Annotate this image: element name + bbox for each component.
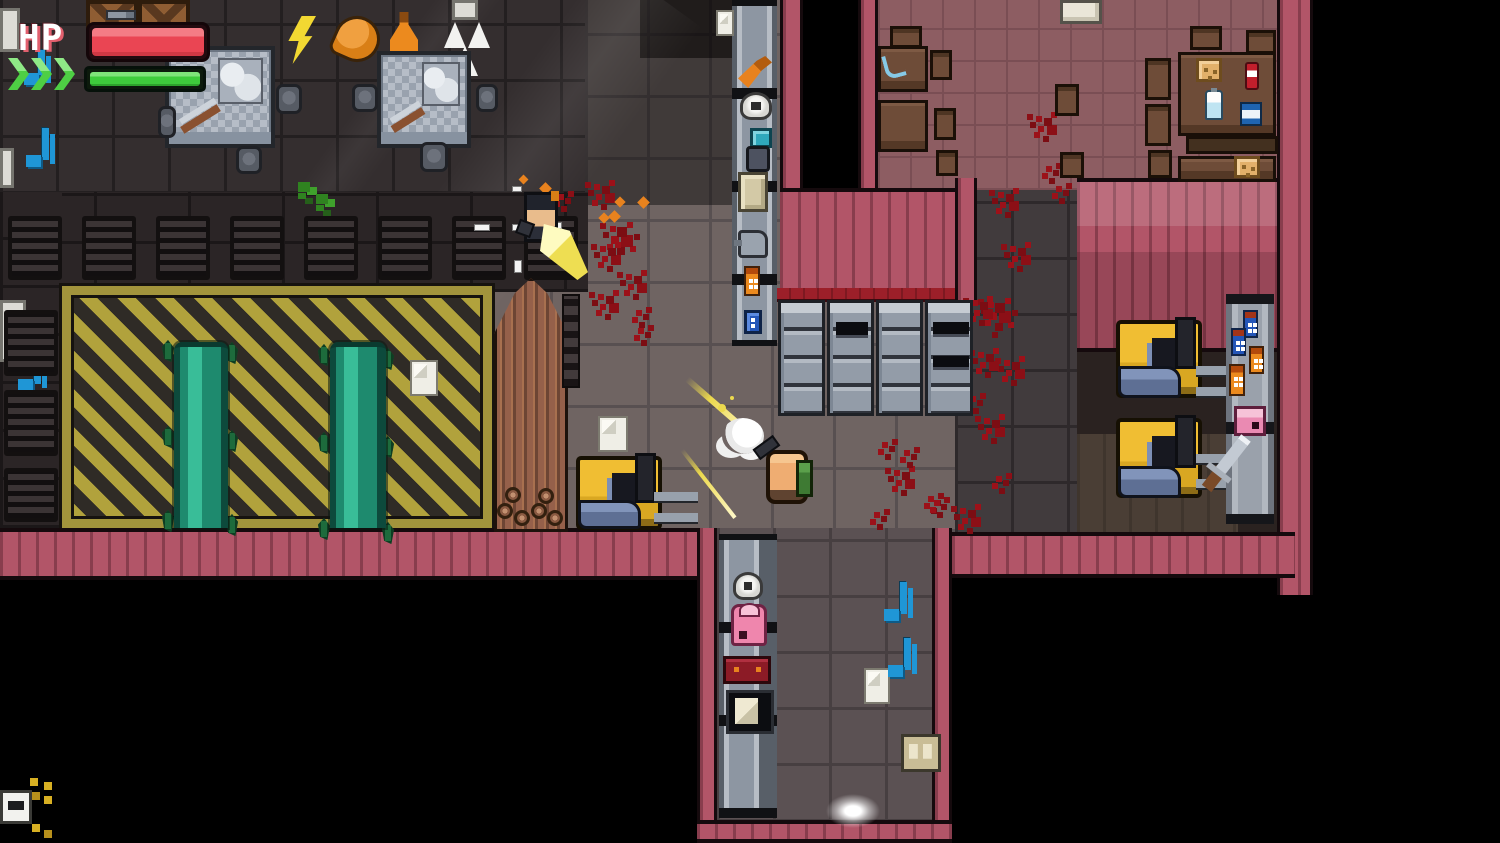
forklift [576, 456, 662, 530]
glow [826, 794, 880, 828]
chair [1145, 104, 1171, 146]
chair [930, 50, 952, 80]
blood-m [998, 192, 1004, 198]
vent [4, 468, 58, 522]
vent [156, 216, 210, 280]
green-slime [316, 194, 328, 204]
paper [410, 360, 438, 396]
blood-m [600, 246, 606, 252]
vent [82, 216, 136, 280]
sign [0, 790, 32, 824]
pinkbox [1234, 406, 1266, 436]
locker-col [827, 300, 874, 416]
citem-bluebox [744, 310, 762, 334]
blood-m [984, 418, 990, 424]
vent [4, 390, 58, 456]
chair [936, 150, 958, 176]
hazard-zone [62, 286, 492, 528]
right-outer-wall [1277, 0, 1313, 595]
vent [8, 216, 62, 280]
blood-s [934, 500, 940, 506]
hp-label: HP [18, 18, 63, 59]
music-note [888, 638, 914, 682]
casing [514, 260, 522, 273]
forklift [1116, 418, 1202, 498]
locker-col [876, 300, 923, 416]
blood-m [960, 508, 966, 514]
paper [716, 10, 734, 36]
corridor-left-wall [697, 528, 717, 843]
blood-s [1056, 186, 1062, 192]
vent [378, 216, 432, 280]
vent [304, 216, 358, 280]
boost-bar-fill [90, 72, 200, 86]
blood-m [978, 352, 984, 358]
blood-m [894, 470, 900, 476]
table-small [878, 100, 928, 152]
citem-helmet [740, 92, 772, 120]
pink-wall-panel [780, 188, 957, 292]
vent [230, 216, 284, 280]
music-note [26, 128, 52, 172]
chair [1055, 84, 1079, 116]
beige-box [738, 172, 768, 212]
chair [890, 26, 922, 48]
bottle-blue [1231, 328, 1246, 356]
chair [1145, 58, 1171, 100]
blood-s [904, 450, 910, 456]
stool [420, 142, 448, 172]
blood-s [882, 442, 888, 448]
whitebox [1060, 0, 1102, 24]
blood-m [1010, 246, 1016, 252]
stool [352, 84, 378, 112]
logend [531, 503, 547, 519]
chevron-icon [54, 58, 75, 90]
chair [934, 108, 956, 140]
blood-m [626, 274, 632, 280]
blood-m [598, 294, 604, 300]
logend [538, 488, 554, 504]
bread [1196, 58, 1222, 82]
redbox [723, 656, 771, 684]
hud: HP [0, 0, 280, 110]
table-small [1178, 156, 1276, 182]
conveyor-teal [330, 342, 386, 528]
whitepart [452, 0, 478, 20]
chevron-icon [8, 58, 29, 90]
locker-open [836, 322, 868, 338]
stool [476, 84, 498, 112]
chair [1060, 152, 1084, 178]
paperbox [726, 690, 774, 734]
game-viewport[interactable]: HP [0, 0, 1500, 843]
boost-chevrons [8, 58, 75, 90]
locker-col [778, 300, 825, 416]
corridor-bottom-wall [697, 820, 952, 843]
citem-seat [746, 146, 770, 172]
green-slime [298, 182, 310, 192]
pink-wall-column [780, 0, 803, 192]
conveyor-teal [174, 342, 228, 528]
whitepart [0, 148, 14, 188]
blood-m [1036, 116, 1042, 122]
logend [497, 503, 513, 519]
cafeteria-left-wall [858, 0, 878, 192]
logend [505, 487, 521, 503]
logend [547, 510, 563, 526]
citem-can [738, 230, 768, 258]
hp-bar [86, 22, 210, 62]
ketchup [1245, 62, 1259, 90]
casing [512, 186, 522, 192]
backpack [731, 604, 767, 646]
forklift [1116, 320, 1202, 398]
paper [598, 416, 628, 452]
chair [1190, 26, 1222, 50]
beigebox-double [901, 734, 941, 772]
ydots [30, 778, 38, 786]
bottle-orange [744, 266, 760, 296]
bottle-orange [1249, 346, 1264, 374]
bread [1234, 156, 1260, 178]
blood-m [1004, 360, 1010, 366]
casing [474, 224, 490, 231]
blood-s [638, 328, 644, 334]
paper [864, 668, 890, 704]
sparkle [718, 404, 726, 412]
player [766, 450, 808, 504]
chair [1246, 30, 1276, 54]
ladder [562, 294, 580, 388]
blood-s [636, 310, 642, 316]
citem-teal [750, 128, 772, 148]
bottle-orange [1229, 364, 1245, 396]
blood-s [1046, 166, 1052, 172]
bench [377, 51, 471, 148]
citem-helmet [733, 572, 763, 600]
stool [158, 106, 176, 138]
void-gap [803, 0, 858, 192]
south-wall-band [952, 532, 1295, 578]
vent [4, 310, 58, 376]
milk [1205, 90, 1223, 120]
chair [1148, 150, 1172, 178]
stool [236, 146, 262, 174]
chevron-icon [31, 58, 52, 90]
corridor-right-wall [932, 528, 952, 843]
blood-m [594, 184, 600, 190]
boost-bar [84, 66, 206, 92]
blood-s [996, 476, 1002, 482]
music-note [884, 582, 910, 626]
forkbars [654, 492, 698, 522]
blood-s [874, 512, 880, 518]
locker-open [933, 322, 969, 337]
logend [514, 510, 530, 526]
locker-open [933, 356, 969, 370]
blood-l [988, 302, 994, 308]
bluecan [1240, 102, 1262, 126]
blood-l [610, 226, 616, 232]
south-wall-band [0, 528, 717, 580]
passage-left-wall [955, 178, 977, 304]
table-shadow [1186, 136, 1278, 154]
hp-bar-fill [92, 28, 204, 56]
